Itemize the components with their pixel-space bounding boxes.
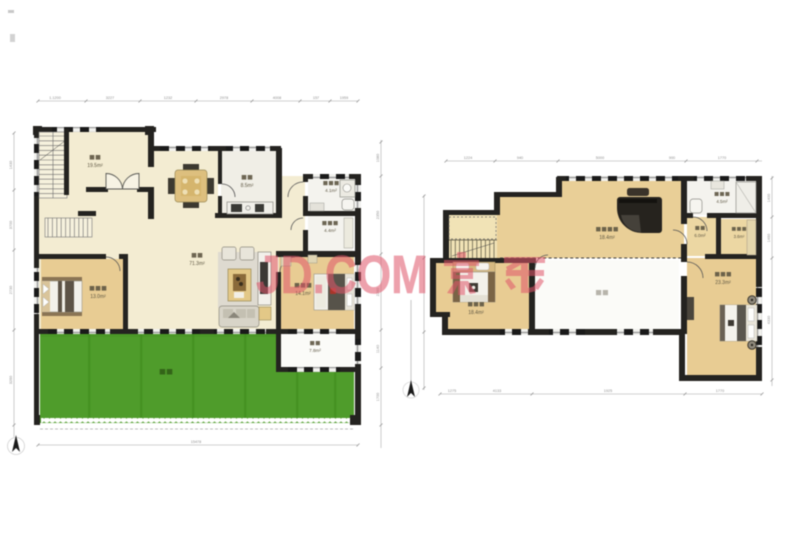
svg-text:71.3m²: 71.3m²	[189, 261, 205, 267]
svg-text:3.6m²: 3.6m²	[734, 234, 745, 239]
svg-text:1925: 1925	[604, 389, 612, 393]
svg-text:23.3m²: 23.3m²	[715, 280, 731, 286]
svg-text:157: 157	[313, 96, 319, 100]
svg-text:3260: 3260	[9, 376, 13, 384]
svg-text:4.1m²: 4.1m²	[325, 188, 337, 193]
svg-text:4133: 4133	[493, 389, 501, 393]
svg-text:JD.COM: JD.COM	[256, 245, 428, 305]
svg-text:15478: 15478	[191, 440, 202, 444]
svg-text:5000: 5000	[596, 156, 604, 160]
svg-text:2350: 2350	[376, 211, 380, 219]
svg-text:1224: 1224	[464, 156, 472, 160]
svg-text:13.0m²: 13.0m²	[90, 294, 106, 300]
svg-text:19.5m²: 19.5m²	[87, 163, 103, 169]
svg-text:1959: 1959	[340, 96, 348, 100]
svg-text:1770: 1770	[716, 389, 724, 393]
svg-text:18.4m²: 18.4m²	[468, 310, 484, 316]
svg-text:940: 940	[517, 156, 523, 160]
svg-text:1430: 1430	[9, 161, 13, 169]
svg-text:3700: 3700	[9, 221, 13, 229]
svg-text:7.8m²: 7.8m²	[309, 348, 321, 353]
svg-text:1275: 1275	[448, 389, 456, 393]
svg-text:4.4m²: 4.4m²	[324, 228, 336, 233]
svg-text:18.4m²: 18.4m²	[599, 235, 615, 241]
svg-text:4.5m²: 4.5m²	[716, 199, 728, 204]
svg-text:1770: 1770	[718, 156, 726, 160]
svg-text:1460: 1460	[767, 234, 771, 242]
svg-text:4008: 4008	[273, 96, 281, 100]
svg-text:1400: 1400	[767, 194, 771, 202]
svg-text:1080: 1080	[376, 154, 380, 162]
svg-text:1140: 1140	[376, 345, 380, 353]
svg-text:2730: 2730	[9, 286, 13, 294]
svg-text:2978: 2978	[220, 96, 228, 100]
svg-text:1232: 1232	[164, 96, 172, 100]
svg-text:8.5m²: 8.5m²	[241, 183, 254, 189]
svg-text:4330: 4330	[767, 316, 771, 324]
svg-text:6.0m²: 6.0m²	[694, 233, 706, 238]
svg-text:1.1200: 1.1200	[49, 96, 61, 100]
svg-text:900: 900	[669, 156, 675, 160]
svg-text:1700: 1700	[376, 393, 380, 401]
svg-text:3227: 3227	[106, 96, 114, 100]
